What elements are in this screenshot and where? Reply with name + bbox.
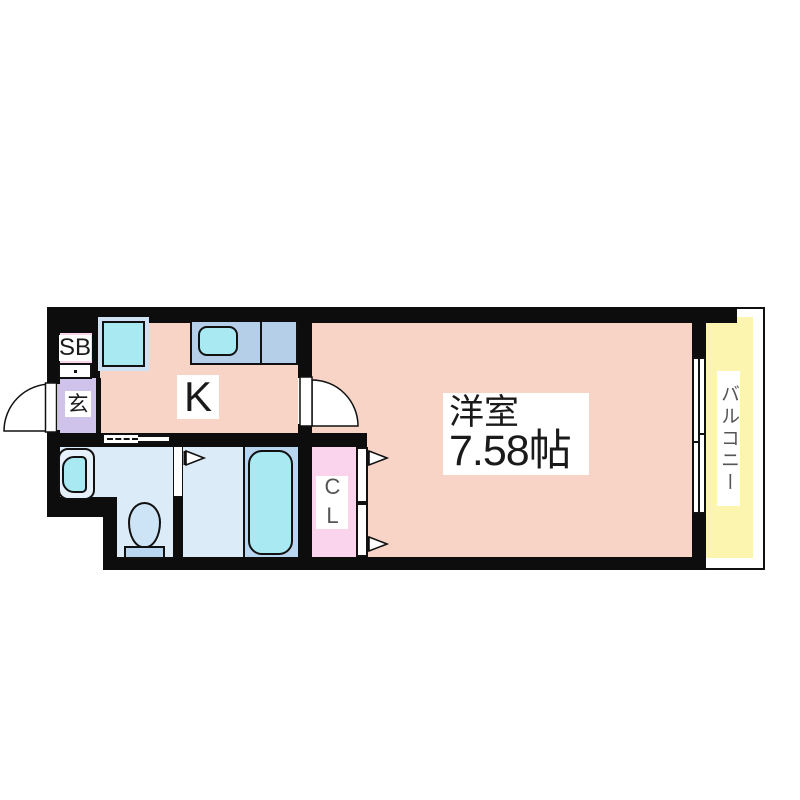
shoe-cabinet-handle [74, 370, 77, 373]
window-center-rail [698, 359, 700, 512]
kitchen-label-text: K [184, 376, 212, 418]
wall-right-upper [692, 307, 706, 359]
sliding-door-panel [138, 435, 169, 443]
toilet [128, 502, 161, 548]
closet-door-arrow-top-icon [366, 449, 390, 467]
wall-kitchen-room-upper [298, 307, 312, 378]
balcony-label-text: バルコニー [719, 384, 738, 494]
western-room-name: 洋室 [449, 395, 519, 430]
floor-plan: 洋室 7.58帖 K 玄 SB CL バルコニー [0, 0, 800, 800]
sliding-door-dashed-track [107, 438, 138, 440]
wall-right-lower [692, 513, 706, 570]
bathtub [248, 450, 293, 555]
counter-divider [260, 322, 262, 363]
refrigerator-space [102, 321, 145, 367]
window-tick-left [694, 441, 699, 443]
shoebox-label: SB [59, 335, 91, 361]
wall-top [47, 307, 737, 323]
wall-bottom [103, 557, 706, 570]
window-tick-right [699, 433, 704, 435]
bath-door-arrow-icon [183, 449, 207, 467]
entrance-label: 玄 [65, 391, 91, 417]
room-door-arc [295, 372, 365, 432]
washroom-sliding-door [103, 434, 170, 444]
balcony-window [692, 357, 706, 514]
entrance-label-text: 玄 [68, 394, 89, 415]
closet-label-text: CL [321, 474, 343, 532]
wall-entrance-kitchen [96, 378, 101, 433]
entrance-door-arc [0, 373, 62, 437]
washbasin-bowl [62, 456, 87, 493]
kitchen-counter [190, 322, 298, 365]
shoe-cabinet [58, 363, 92, 379]
wall-mid-horizontal [47, 433, 367, 447]
western-room-size: 7.58帖 [449, 430, 571, 473]
washbasin [58, 448, 95, 500]
wall-shoebox-side [92, 322, 100, 378]
kitchen-sink [198, 326, 238, 356]
wall-kitchen-room-lower [298, 424, 312, 557]
western-room-label: 洋室 7.58帖 [443, 393, 589, 475]
kitchen-label: K [177, 375, 219, 419]
bath-door-opening [173, 446, 183, 497]
shoebox-label-text: SB [59, 336, 91, 360]
closet-door-arrow-bottom-icon [366, 535, 390, 553]
closet-label: CL [316, 476, 348, 529]
balcony-label: バルコニー [717, 371, 740, 506]
